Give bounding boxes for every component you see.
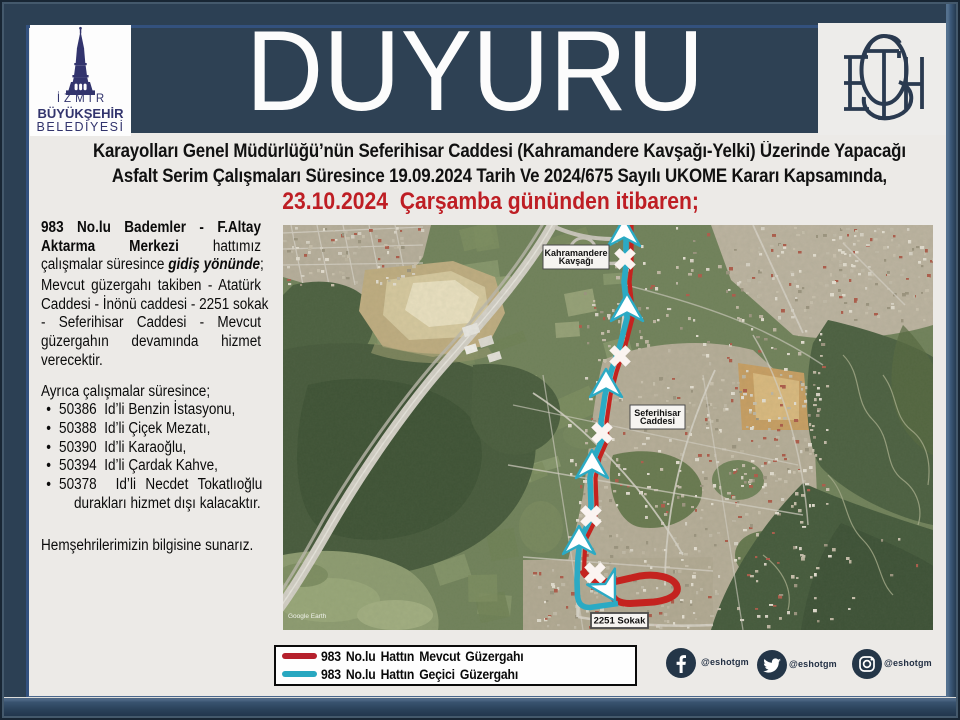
svg-text:2251 Sokak: 2251 Sokak [594, 616, 646, 627]
svg-text:Caddesi: Caddesi [640, 416, 675, 426]
svg-text:Kavşağı: Kavşağı [559, 256, 594, 266]
svg-text:Google Earth: Google Earth [288, 613, 327, 620]
